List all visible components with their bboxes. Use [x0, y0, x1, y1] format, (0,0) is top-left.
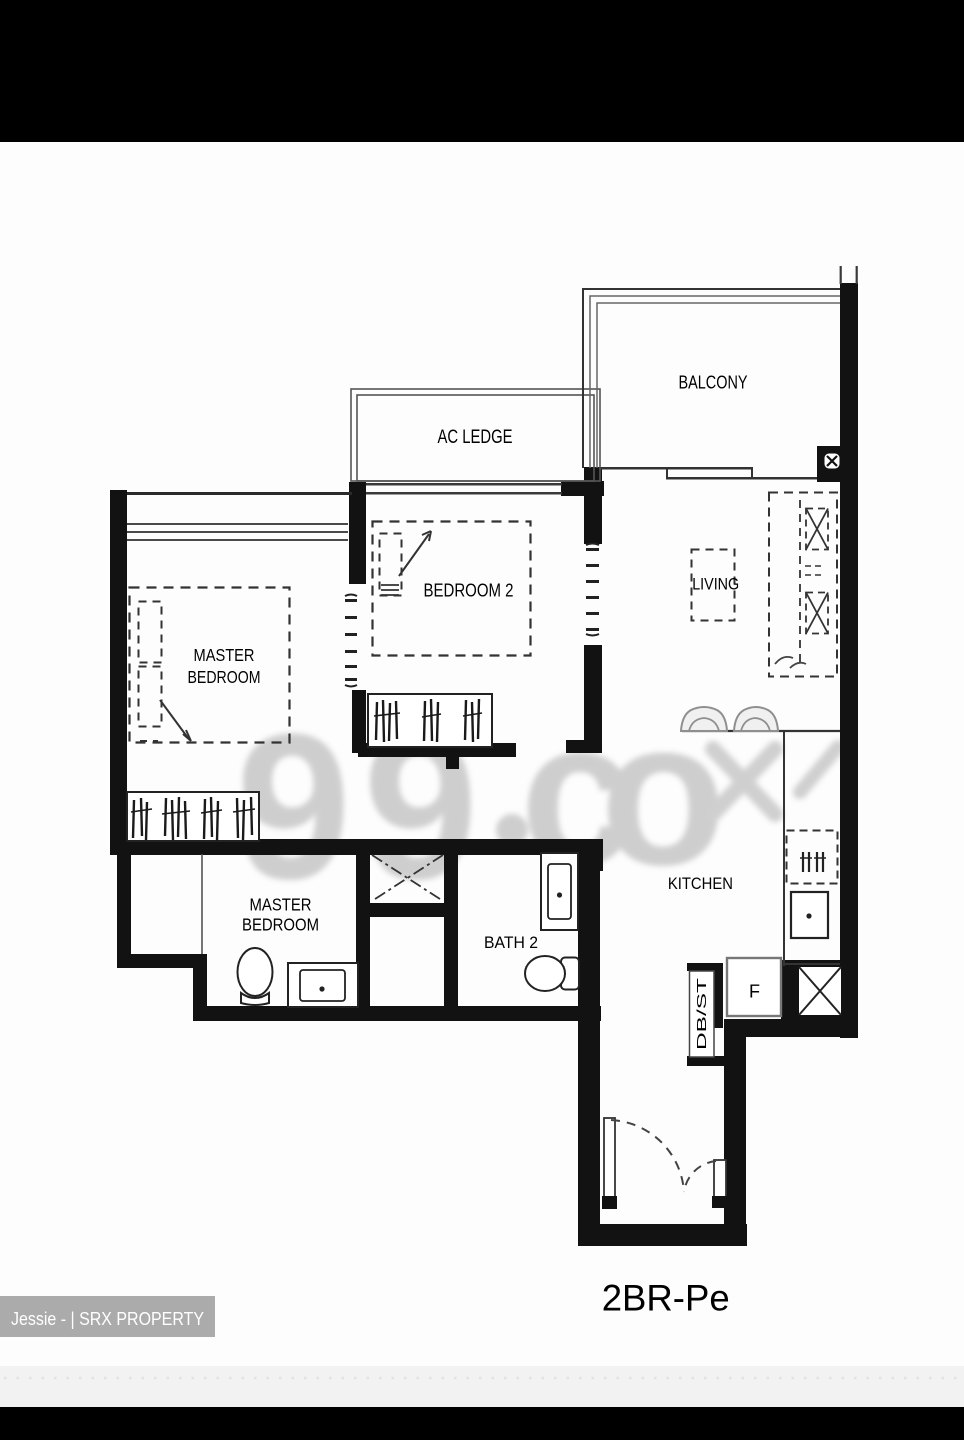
svg-text:BEDROOM 2: BEDROOM 2	[424, 581, 514, 601]
svg-text:MASTER: MASTER	[194, 645, 255, 665]
svg-text:AC LEDGE: AC LEDGE	[438, 427, 513, 448]
svg-text:BALCONY: BALCONY	[679, 373, 748, 393]
svg-text:BATH 2: BATH 2	[484, 934, 538, 952]
svg-text:2BR-Pe: 2BR-Pe	[602, 1277, 730, 1319]
svg-text:Jessie - | SRX PROPERTY: Jessie - | SRX PROPERTY	[11, 1308, 204, 1329]
svg-text:KITCHEN: KITCHEN	[668, 875, 733, 893]
svg-text:F: F	[749, 982, 760, 1002]
svg-text:BEDROOM: BEDROOM	[242, 915, 319, 935]
svg-text:LIVING: LIVING	[692, 575, 739, 593]
svg-text:BEDROOM: BEDROOM	[188, 667, 261, 687]
svg-text:MASTER: MASTER	[250, 895, 312, 915]
svg-text:DB/ST: DB/ST	[694, 978, 709, 1050]
